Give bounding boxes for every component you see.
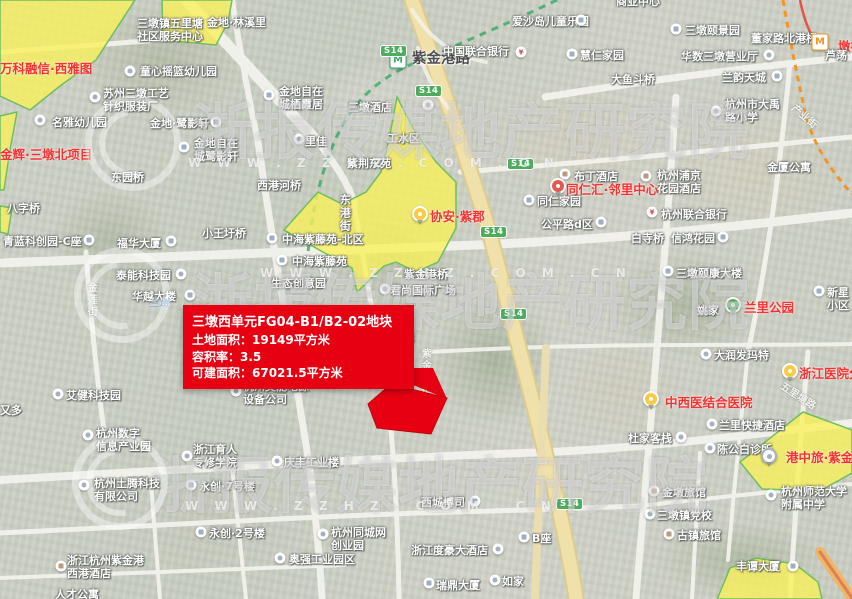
parcel-details: 土地面积：19149平方米容积率：3.5可建面积：67021.5平方米	[192, 332, 406, 382]
parcel-annotation	[0, 0, 852, 599]
parcel-title: 三墩西单元FG04-B1/B2-02地块	[192, 311, 406, 330]
map-canvas[interactable]: 万科融信·西雅图金辉·三墩北项目协安·紫郡同仁汇·邻里中心兰里公园浙江医院分院中…	[0, 0, 852, 599]
parcel-infobox: 三墩西单元FG04-B1/B2-02地块 土地面积：19149平方米容积率：3.…	[183, 305, 414, 389]
infobox-line: 可建面积：67021.5平方米	[192, 365, 406, 382]
infobox-line: 土地面积：19149平方米	[192, 332, 406, 349]
infobox-line: 容积率：3.5	[192, 349, 406, 366]
